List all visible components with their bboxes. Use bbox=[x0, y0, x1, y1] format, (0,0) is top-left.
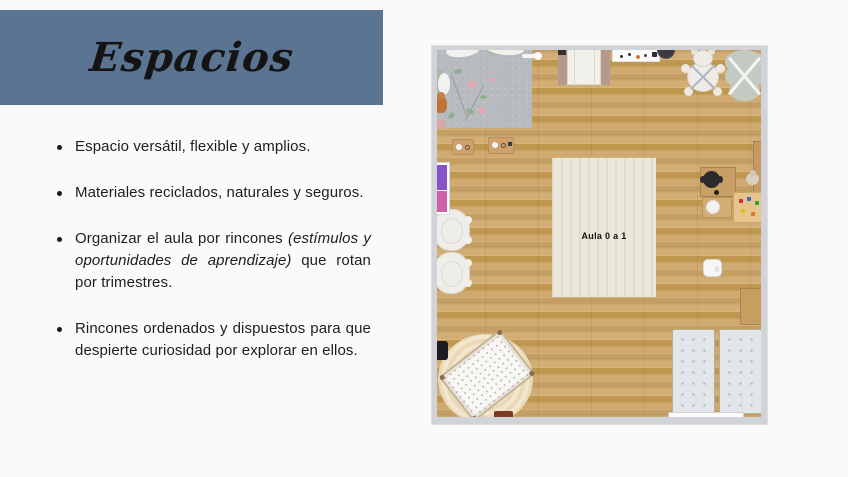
list-item: Organizar el aula por rincones (estímulo… bbox=[57, 228, 371, 294]
bullet-text: Espacio versátil, flexible y amplios. bbox=[75, 136, 371, 158]
center-rug: Aula 0 a 1 bbox=[552, 158, 656, 297]
shelf-toy bbox=[628, 53, 631, 56]
garland-leaf bbox=[447, 112, 456, 120]
office-chair bbox=[703, 171, 720, 188]
shelf-toy bbox=[620, 55, 623, 58]
entry-door bbox=[567, 48, 601, 85]
bullet-text: Rincones ordenados y dispuestos para que… bbox=[75, 318, 371, 362]
baby-gym-bear-mat bbox=[683, 50, 723, 97]
room-label: Aula 0 a 1 bbox=[552, 231, 656, 241]
small-teddy bbox=[746, 173, 759, 185]
floorplan-image: Aula 0 a 1 bbox=[432, 46, 767, 424]
toy-block bbox=[751, 212, 755, 216]
page-title: Espacios bbox=[87, 34, 296, 81]
shelf-toy bbox=[636, 55, 640, 59]
desk-item bbox=[714, 190, 719, 195]
toy-block bbox=[508, 142, 512, 146]
wall-shelf-with-toys bbox=[612, 48, 660, 62]
list-item: Espacio versátil, flexible y amplios. bbox=[57, 136, 371, 158]
garland-flower bbox=[490, 77, 495, 82]
shelf-toy bbox=[652, 52, 657, 57]
bullet-dot bbox=[57, 145, 62, 150]
garland-flower bbox=[468, 81, 476, 89]
bullet-list: Espacio versátil, flexible y amplios. Ma… bbox=[57, 136, 371, 386]
nap-mat bbox=[719, 329, 762, 414]
nap-mats bbox=[672, 329, 762, 414]
toy-block bbox=[741, 209, 745, 213]
bullet-text: Organizar el aula por rincones (estímulo… bbox=[75, 228, 371, 294]
toy-block bbox=[755, 201, 759, 205]
wall bbox=[761, 46, 767, 424]
bullet-dot bbox=[57, 327, 62, 332]
toy-ring bbox=[501, 143, 506, 148]
garland-leaf bbox=[480, 95, 487, 99]
garland-branch bbox=[465, 85, 485, 121]
list-item: Rincones ordenados y dispuestos para que… bbox=[57, 318, 371, 362]
slide-canvas: Espacios Espacio versátil, flexible y am… bbox=[0, 0, 848, 477]
list-item: Materiales reciclados, naturales y segur… bbox=[57, 182, 371, 204]
activity-tray bbox=[488, 137, 514, 154]
crib-post bbox=[496, 329, 503, 336]
garland-leaf bbox=[454, 69, 462, 74]
toy-block bbox=[747, 197, 751, 201]
toy-cup bbox=[456, 144, 462, 150]
round-stool bbox=[706, 200, 720, 214]
pink-toy bbox=[436, 120, 446, 129]
nap-mat bbox=[672, 329, 715, 414]
wall bbox=[432, 417, 767, 424]
right-wall-cabinet bbox=[740, 288, 762, 325]
garland-flower bbox=[478, 107, 485, 114]
wall bbox=[432, 46, 767, 50]
round-armchair bbox=[433, 209, 470, 251]
potty bbox=[703, 259, 722, 277]
round-armchair bbox=[433, 252, 470, 294]
toy-ring bbox=[465, 145, 470, 150]
bear-paw bbox=[681, 64, 690, 73]
activity-tray bbox=[452, 139, 474, 155]
rattle-toy bbox=[522, 54, 538, 58]
bear-paw bbox=[716, 64, 725, 73]
wall bbox=[432, 46, 437, 424]
garland-branch bbox=[450, 72, 467, 116]
baby-gym-flower-mat bbox=[725, 50, 764, 101]
toy-block bbox=[739, 199, 743, 203]
title-band: Espacios bbox=[0, 10, 383, 105]
crib-post bbox=[528, 370, 535, 377]
bullet-dot bbox=[57, 191, 62, 196]
gray-play-rug bbox=[436, 47, 532, 128]
door-frame bbox=[601, 48, 610, 85]
bullet-dot bbox=[57, 237, 62, 242]
bullet-text-normal: Organizar el aula por rincones bbox=[75, 230, 288, 247]
shelf-toy bbox=[644, 54, 647, 57]
bullet-text: Materiales reciclados, naturales y segur… bbox=[75, 182, 371, 204]
toy-cup bbox=[492, 142, 498, 148]
